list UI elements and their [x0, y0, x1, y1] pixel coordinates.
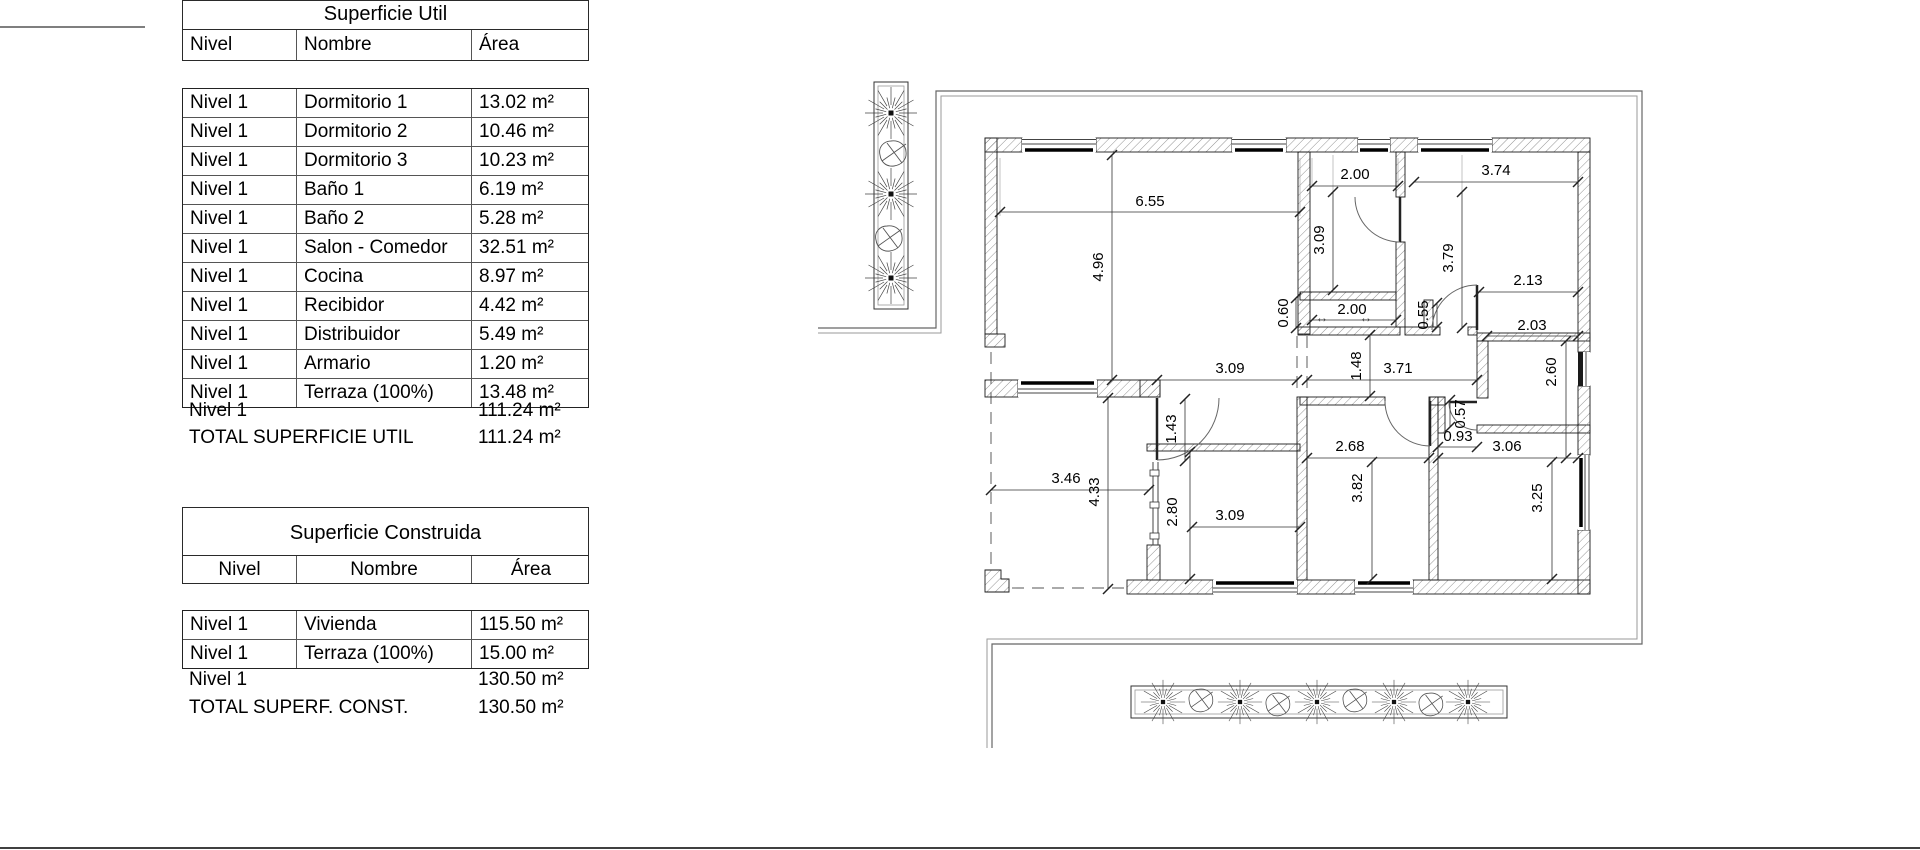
- svg-text:3.09: 3.09: [1311, 225, 1328, 254]
- window: [1578, 352, 1590, 386]
- left-planter: [865, 82, 917, 309]
- drawing-sheet: Superficie Util Nivel Nombre Área Nivel …: [0, 0, 1920, 850]
- bano2-north-wall: [1477, 333, 1590, 341]
- plant-icon: [865, 168, 917, 220]
- floor-plan: ↔ ↔ 6.55 4.96 2.00 3.74 3.09 3.79 2.13 0…: [0, 0, 1920, 850]
- dim-dorm2-width: 2.68: [1302, 438, 1434, 463]
- dim-bano2-height: 2.60: [1543, 336, 1571, 463]
- dim-terraza-width: 3.46: [986, 470, 1154, 495]
- bottom-planter: [1131, 680, 1507, 724]
- parcel-boundary: [818, 91, 1642, 748]
- dorm2-door: [1385, 401, 1430, 446]
- dim-pasillo-height: 1.48: [1348, 330, 1375, 401]
- dim-stub-height: 0.55: [1415, 298, 1442, 332]
- svg-text:3.09: 3.09: [1215, 360, 1244, 377]
- svg-text:2.60: 2.60: [1543, 357, 1560, 386]
- dim-salon-width: 6.55: [995, 193, 1305, 217]
- plant-icon: [865, 87, 917, 139]
- svg-text:3.25: 3.25: [1529, 483, 1546, 512]
- svg-text:0.60: 0.60: [1275, 298, 1292, 327]
- svg-text:2.13: 2.13: [1513, 272, 1542, 289]
- window: [1358, 138, 1390, 152]
- svg-text:2.80: 2.80: [1164, 497, 1181, 526]
- dim-distribuidor-width: 3.71: [1302, 360, 1482, 385]
- dim-armario-height: 0.60: [1275, 293, 1301, 333]
- svg-text:4.96: 4.96: [1090, 252, 1107, 281]
- svg-text:0.55: 0.55: [1415, 300, 1432, 329]
- dim-dorm1-width: 3.74: [1409, 162, 1583, 187]
- svg-text:0.93: 0.93: [1443, 428, 1472, 445]
- right-wall: [1578, 152, 1590, 352]
- glazed-wall: [1150, 462, 1159, 545]
- svg-text:3.09: 3.09: [1215, 507, 1244, 524]
- plant-icon: [865, 252, 917, 304]
- window: [1022, 138, 1096, 152]
- svg-text:6.55: 6.55: [1135, 193, 1164, 210]
- dim-cocina-width: 3.09: [1187, 507, 1305, 532]
- dim-dorm1-height: 3.79: [1440, 187, 1467, 333]
- svg-text:3.06: 3.06: [1492, 438, 1521, 455]
- terrace-corner-pier: [985, 570, 1009, 592]
- dim-dorm3-height: 3.25: [1529, 457, 1557, 584]
- bano1-door: [1355, 197, 1400, 242]
- window: [1232, 138, 1286, 152]
- dim-dorm2-height: 3.82: [1349, 457, 1377, 584]
- window: [1578, 455, 1590, 530]
- dim-bano1-width: 2.00: [1307, 166, 1403, 191]
- svg-text:3.82: 3.82: [1349, 473, 1366, 502]
- house-walls: [985, 138, 1590, 594]
- dim-recibidor-width: 3.09: [1152, 360, 1302, 385]
- window: [1018, 380, 1097, 397]
- svg-text:2.68: 2.68: [1335, 438, 1364, 455]
- window: [1213, 580, 1297, 594]
- svg-text:1.43: 1.43: [1163, 414, 1180, 443]
- armario-wall: [1300, 292, 1396, 300]
- svg-text:2.03: 2.03: [1517, 317, 1546, 334]
- svg-text:3.46: 3.46: [1051, 470, 1080, 487]
- svg-text:0.57: 0.57: [1452, 399, 1469, 428]
- slider-arrow-icon: ↔: [1316, 310, 1329, 325]
- left-wall: [985, 138, 997, 334]
- extension-lines: [1000, 155, 1462, 216]
- dim-bano1-height: 3.09: [1311, 187, 1338, 295]
- terrace-dashed-boundary: [985, 336, 1307, 592]
- svg-text:3.74: 3.74: [1481, 162, 1510, 179]
- dim-terraza-height: 4.33: [1086, 393, 1113, 594]
- svg-text:2.00: 2.00: [1340, 166, 1369, 183]
- svg-text:3.79: 3.79: [1440, 243, 1457, 272]
- dorm1-door: [1432, 285, 1477, 330]
- svg-text:2.00: 2.00: [1337, 301, 1366, 318]
- dim-cocina-height: 2.80: [1164, 447, 1195, 584]
- corridor-south-wall: [1300, 397, 1385, 405]
- kitchen-counter: [1147, 444, 1300, 451]
- svg-text:1.48: 1.48: [1348, 351, 1365, 380]
- dimensions: 6.55 4.96 2.00 3.74 3.09 3.79 2.13 0.60 …: [986, 150, 1583, 594]
- window: [1355, 580, 1413, 594]
- svg-text:3.71: 3.71: [1383, 360, 1412, 377]
- window: [1418, 138, 1492, 152]
- dim-paso-height: 0.57: [1445, 395, 1469, 432]
- dim-salon-height: 4.96: [1090, 150, 1117, 385]
- svg-text:4.33: 4.33: [1086, 477, 1103, 506]
- dim-wardrobe-width: 2.13: [1474, 272, 1583, 297]
